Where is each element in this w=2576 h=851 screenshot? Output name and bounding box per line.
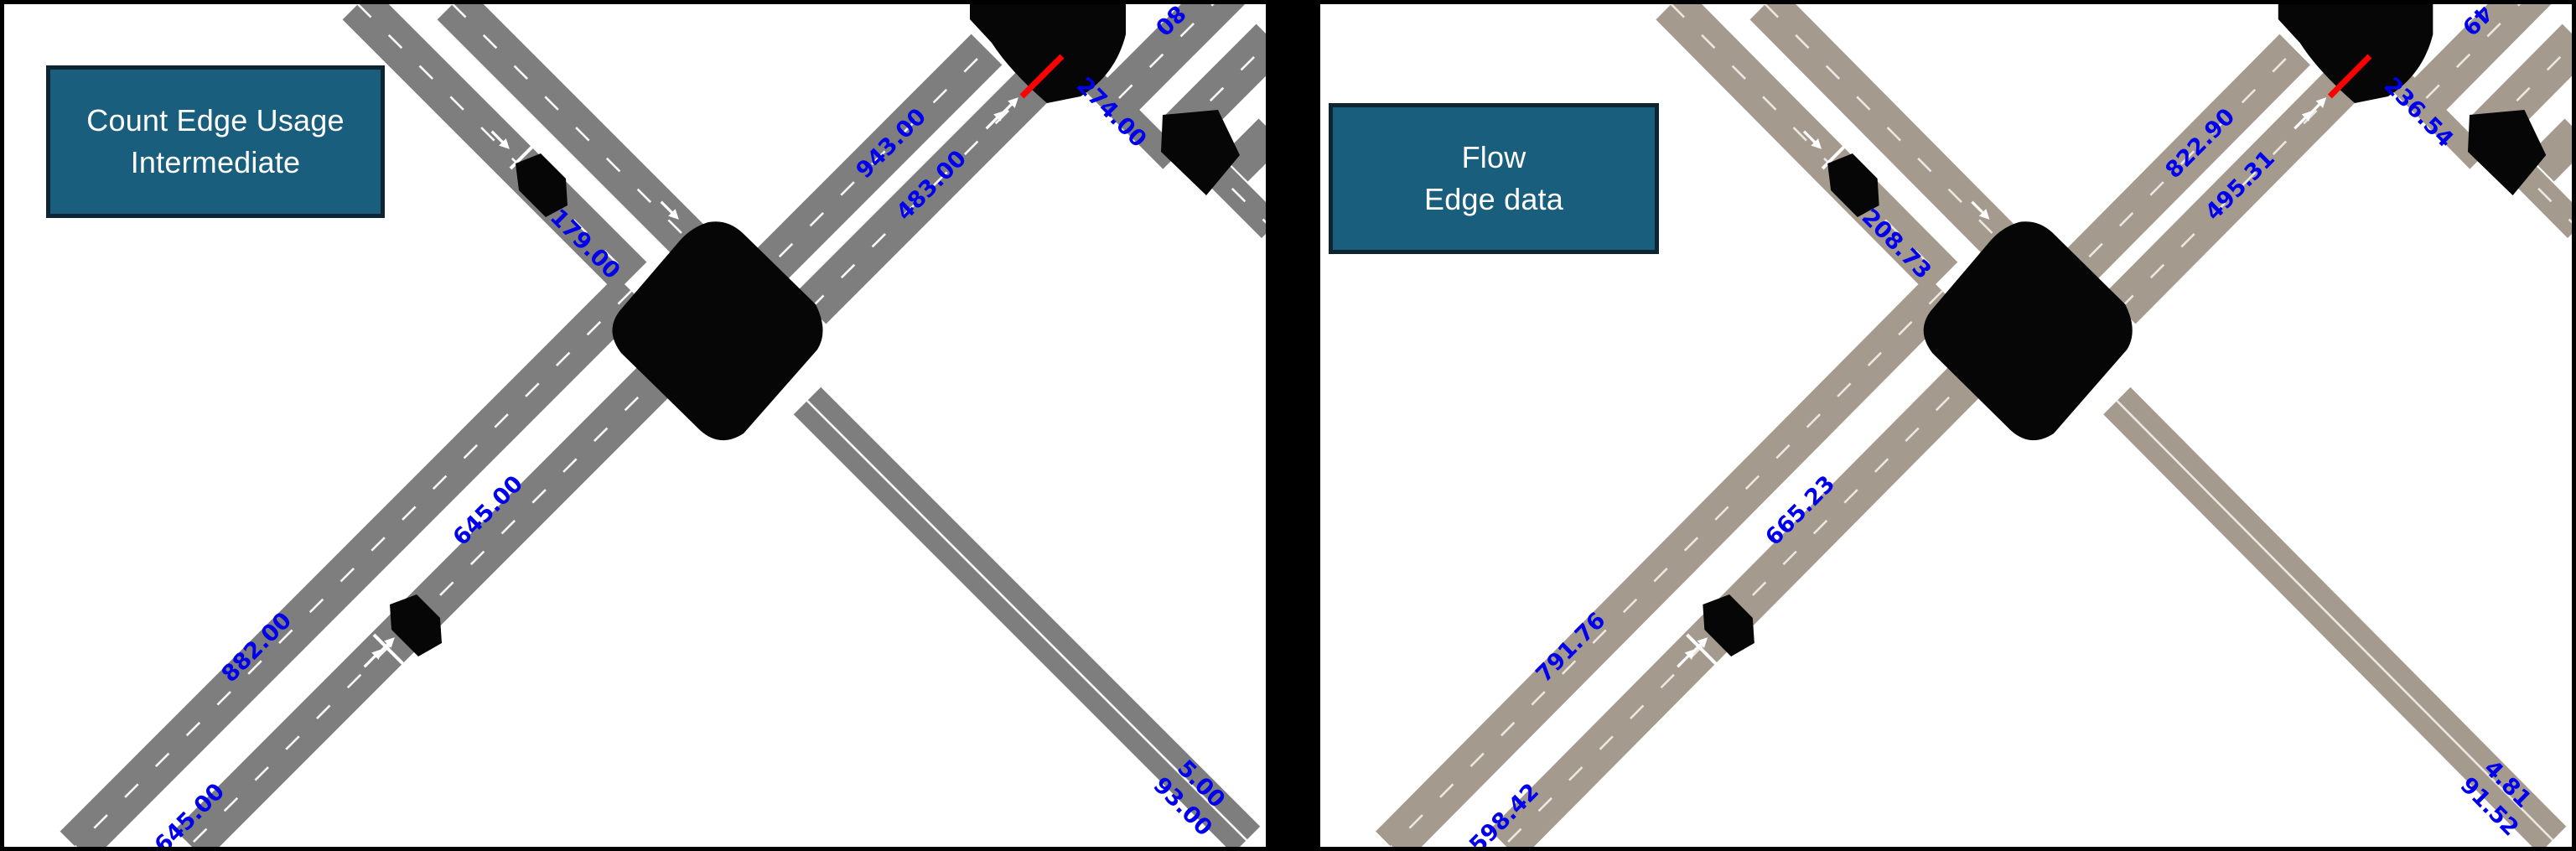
callout-count-edge-usage: Count Edge Usage Intermediate bbox=[46, 65, 385, 218]
callout-line-1: Flow bbox=[1462, 137, 1526, 179]
panel-flow-edge-data: 822.90495.31208.73236.5449665.23791.7659… bbox=[1320, 4, 2572, 847]
callout-flow-edge-data: Flow Edge data bbox=[1329, 103, 1659, 254]
callout-line-2: Intermediate bbox=[131, 142, 301, 184]
panel-divider bbox=[1266, 0, 1320, 851]
callout-line-2: Edge data bbox=[1424, 179, 1563, 221]
road-edge bbox=[2541, 132, 2572, 169]
callout-line-1: Count Edge Usage bbox=[86, 100, 344, 142]
panel-count-edge-usage: 943.00483.00179.00274.0080645.00882.0064… bbox=[4, 4, 1266, 847]
road-edge bbox=[1235, 132, 1266, 169]
comparison-slide: { "colors": { "background": "#000000", "… bbox=[0, 0, 2576, 851]
